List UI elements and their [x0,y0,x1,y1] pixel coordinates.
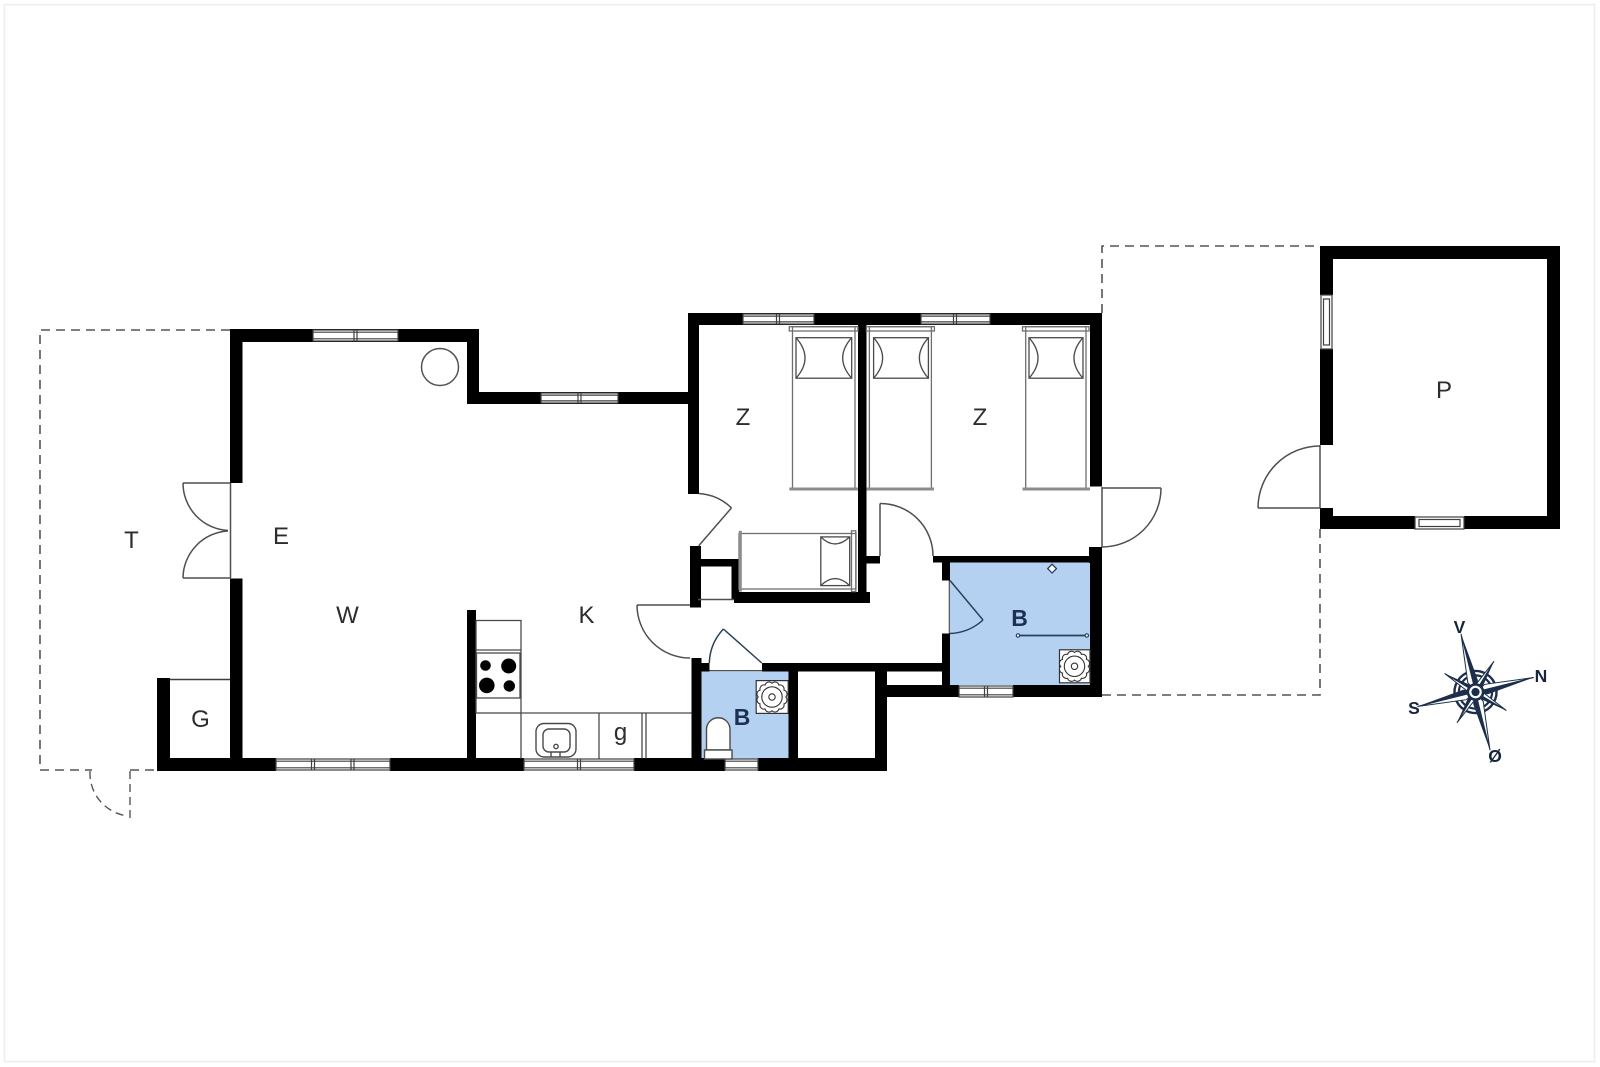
svg-text:W: W [336,602,359,629]
svg-text:Ø: Ø [1488,746,1502,766]
svg-text:g: g [614,719,627,746]
svg-text:Z: Z [973,404,988,431]
svg-text:Z: Z [736,404,751,431]
svg-text:G: G [191,706,210,733]
svg-text:B: B [734,704,751,730]
svg-text:P: P [1436,377,1452,404]
svg-text:V: V [1454,617,1466,637]
svg-text:E: E [273,523,289,550]
svg-text:N: N [1535,666,1548,686]
svg-text:B: B [1011,605,1028,631]
svg-text:S: S [1408,698,1420,718]
svg-text:K: K [578,602,594,629]
svg-text:T: T [124,527,139,554]
